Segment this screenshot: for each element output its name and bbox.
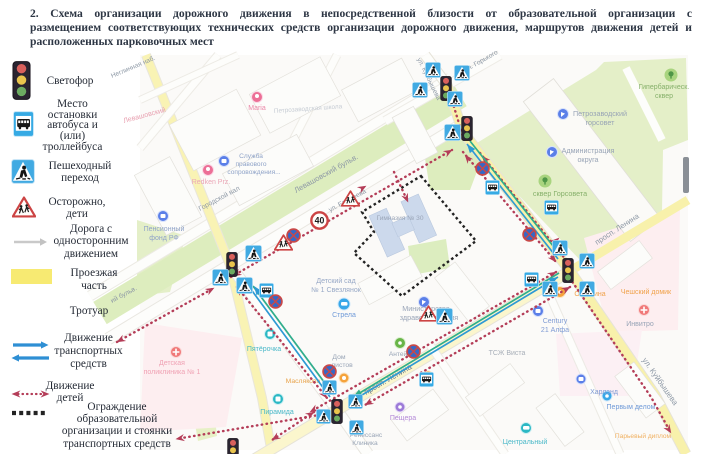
svg-text:Клиника: Клиника bbox=[352, 440, 378, 447]
svg-text:сквер: сквер bbox=[655, 93, 673, 100]
svg-text:горсовет: горсовет bbox=[586, 118, 616, 127]
svg-text:Антей: Антей bbox=[389, 350, 408, 358]
svg-text:Центральный: Центральный bbox=[503, 438, 548, 446]
svg-text:Петрозаводский: Петрозаводский bbox=[573, 109, 627, 118]
svg-text:Детская: Детская bbox=[159, 360, 185, 367]
svg-text:Администрация: Администрация bbox=[562, 146, 615, 155]
svg-text:Чешский домик: Чешский домик bbox=[621, 288, 672, 296]
svg-text:Стрела: Стрела bbox=[332, 312, 356, 319]
svg-text:округа: округа bbox=[577, 155, 598, 164]
svg-text:правового: правового bbox=[235, 161, 266, 168]
svg-text:Century: Century bbox=[543, 318, 568, 325]
svg-text:21 Алфа: 21 Алфа bbox=[541, 327, 569, 334]
svg-text:Первым делом: Первым делом bbox=[607, 404, 656, 411]
svg-text:Парьевый диплом: Парьевый диплом bbox=[615, 432, 672, 440]
svg-text:фонд РФ: фонд РФ bbox=[149, 235, 178, 242]
svg-text:Гипербарическ.: Гипербарическ. bbox=[639, 83, 690, 91]
svg-text:поликлиника № 1: поликлиника № 1 bbox=[144, 369, 201, 376]
svg-text:Маслякова: Маслякова bbox=[286, 378, 321, 385]
svg-text:Детский сад: Детский сад bbox=[316, 277, 355, 285]
svg-text:Гимназия № 30: Гимназия № 30 bbox=[377, 215, 424, 222]
svg-text:Пенсионный: Пенсионный bbox=[144, 225, 185, 233]
svg-text:Дом: Дом bbox=[332, 354, 345, 361]
svg-text:Maria: Maria bbox=[248, 105, 266, 112]
svg-text:Пятёрочка: Пятёрочка bbox=[247, 346, 281, 353]
svg-text:сопровождения...: сопровождения... bbox=[227, 169, 280, 176]
svg-text:Инвитро: Инвитро bbox=[626, 321, 654, 328]
svg-text:Redken Prz.: Redken Prz. bbox=[192, 179, 231, 186]
svg-text:сквер Горсовета: сквер Горсовета bbox=[533, 189, 587, 198]
svg-text:Пещера: Пещера bbox=[390, 415, 416, 422]
svg-text:Служба: Служба bbox=[239, 152, 263, 160]
svg-text:ТСЖ Виста: ТСЖ Виста bbox=[489, 350, 526, 357]
svg-text:№ 1 Свезлянок: № 1 Свезлянок bbox=[311, 287, 361, 294]
svg-text:Пирамида: Пирамида bbox=[260, 409, 294, 416]
svg-text:Харлэнд: Харлэнд bbox=[590, 389, 618, 396]
